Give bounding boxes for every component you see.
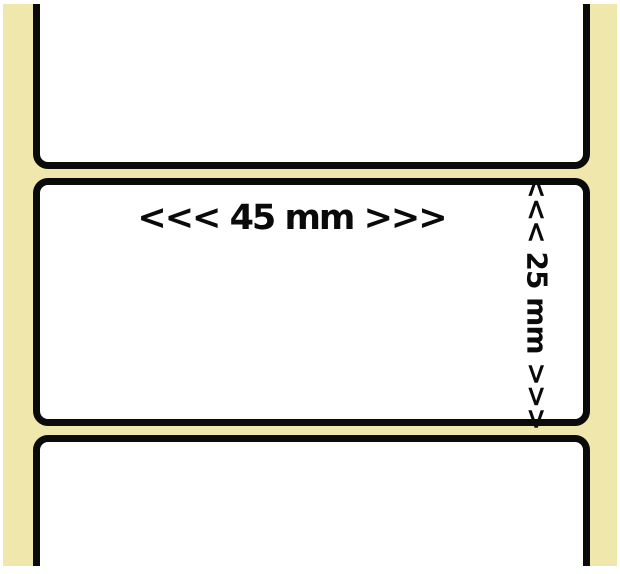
label-roll-illustration: <<< 45 mm >>> <<< 25 mm >>> xyxy=(0,0,620,574)
height-dimension-container: <<< 25 mm >>> xyxy=(519,185,555,419)
liner-backing: <<< 45 mm >>> <<< 25 mm >>> xyxy=(3,4,617,566)
label-top-partial xyxy=(33,4,590,169)
label-middle: <<< 45 mm >>> <<< 25 mm >>> xyxy=(33,178,590,426)
height-dimension-text: <<< 25 mm >>> xyxy=(521,175,554,429)
width-dimension-text: <<< 45 mm >>> xyxy=(40,198,543,238)
label-bottom-partial xyxy=(33,435,590,566)
